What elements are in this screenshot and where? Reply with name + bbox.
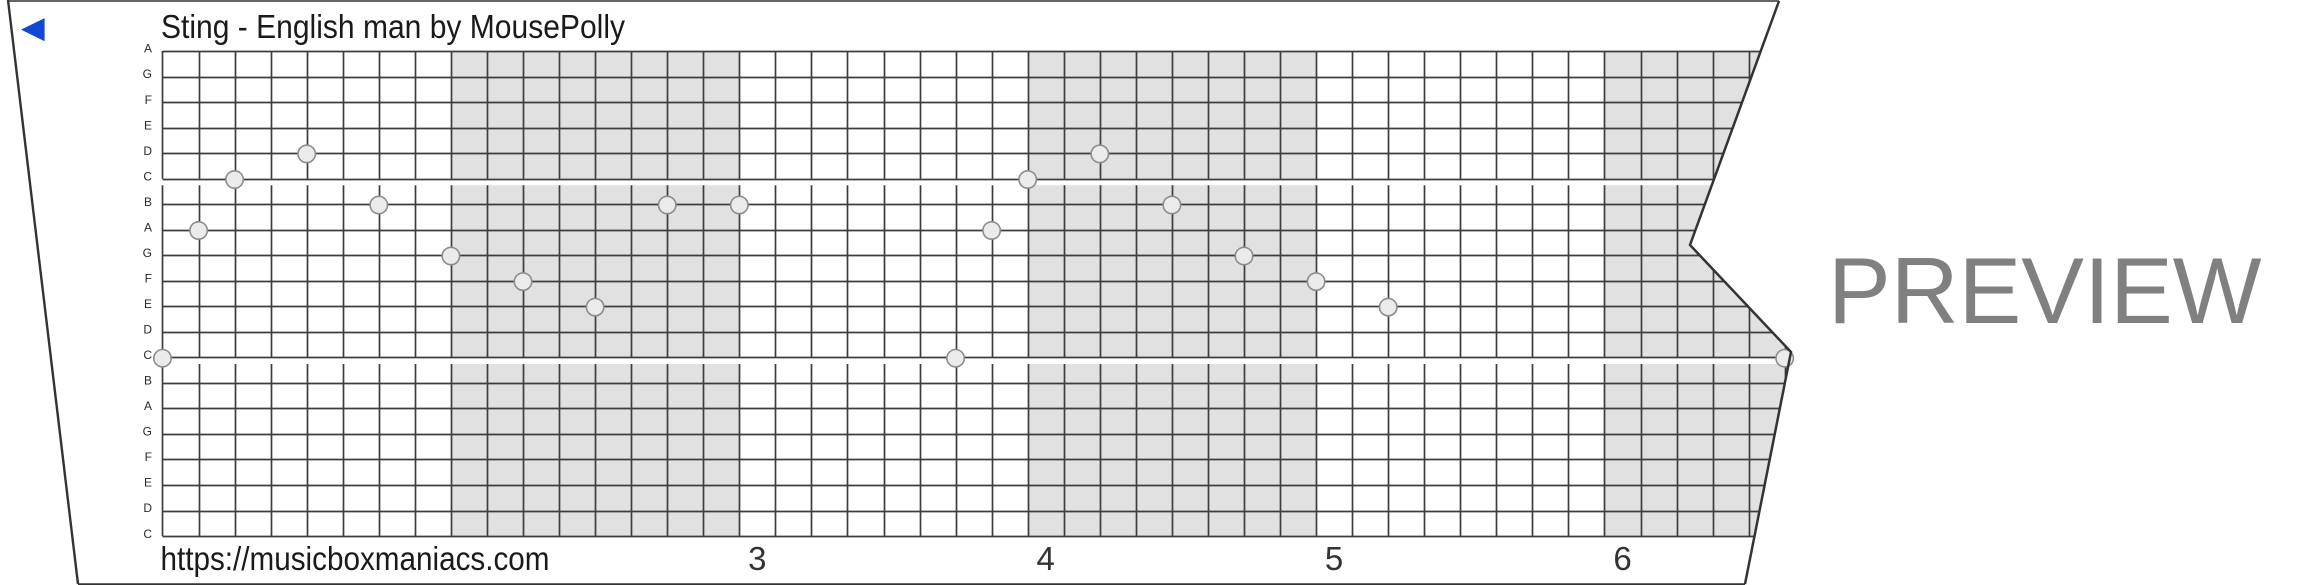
svg-text:A: A	[144, 220, 152, 234]
svg-text:F: F	[145, 272, 152, 286]
svg-text:C: C	[143, 527, 152, 541]
svg-text:A: A	[144, 42, 152, 56]
svg-text:C: C	[143, 169, 152, 183]
svg-text:D: D	[143, 144, 152, 158]
svg-text:E: E	[144, 118, 152, 132]
svg-text:E: E	[144, 476, 152, 490]
svg-text:3: 3	[748, 540, 766, 577]
svg-text:G: G	[143, 246, 152, 260]
svg-text:B: B	[144, 374, 152, 388]
svg-text:C: C	[143, 348, 152, 362]
svg-text:5: 5	[1325, 540, 1343, 577]
svg-text:Sting - English man by MousePo: Sting - English man by MousePolly	[161, 8, 625, 45]
svg-text:4: 4	[1037, 540, 1055, 577]
svg-text:https://musicboxmaniacs.com: https://musicboxmaniacs.com	[161, 540, 550, 577]
svg-text:G: G	[143, 425, 152, 439]
svg-text:F: F	[145, 450, 152, 464]
svg-text:D: D	[143, 323, 152, 337]
svg-text:G: G	[143, 67, 152, 81]
svg-text:A: A	[144, 399, 152, 413]
svg-text:6: 6	[1613, 540, 1631, 577]
svg-text:B: B	[144, 195, 152, 209]
svg-text:E: E	[144, 297, 152, 311]
svg-text:D: D	[143, 501, 152, 515]
svg-text:F: F	[145, 93, 152, 107]
svg-text:PREVIEW: PREVIEW	[1828, 238, 2262, 343]
